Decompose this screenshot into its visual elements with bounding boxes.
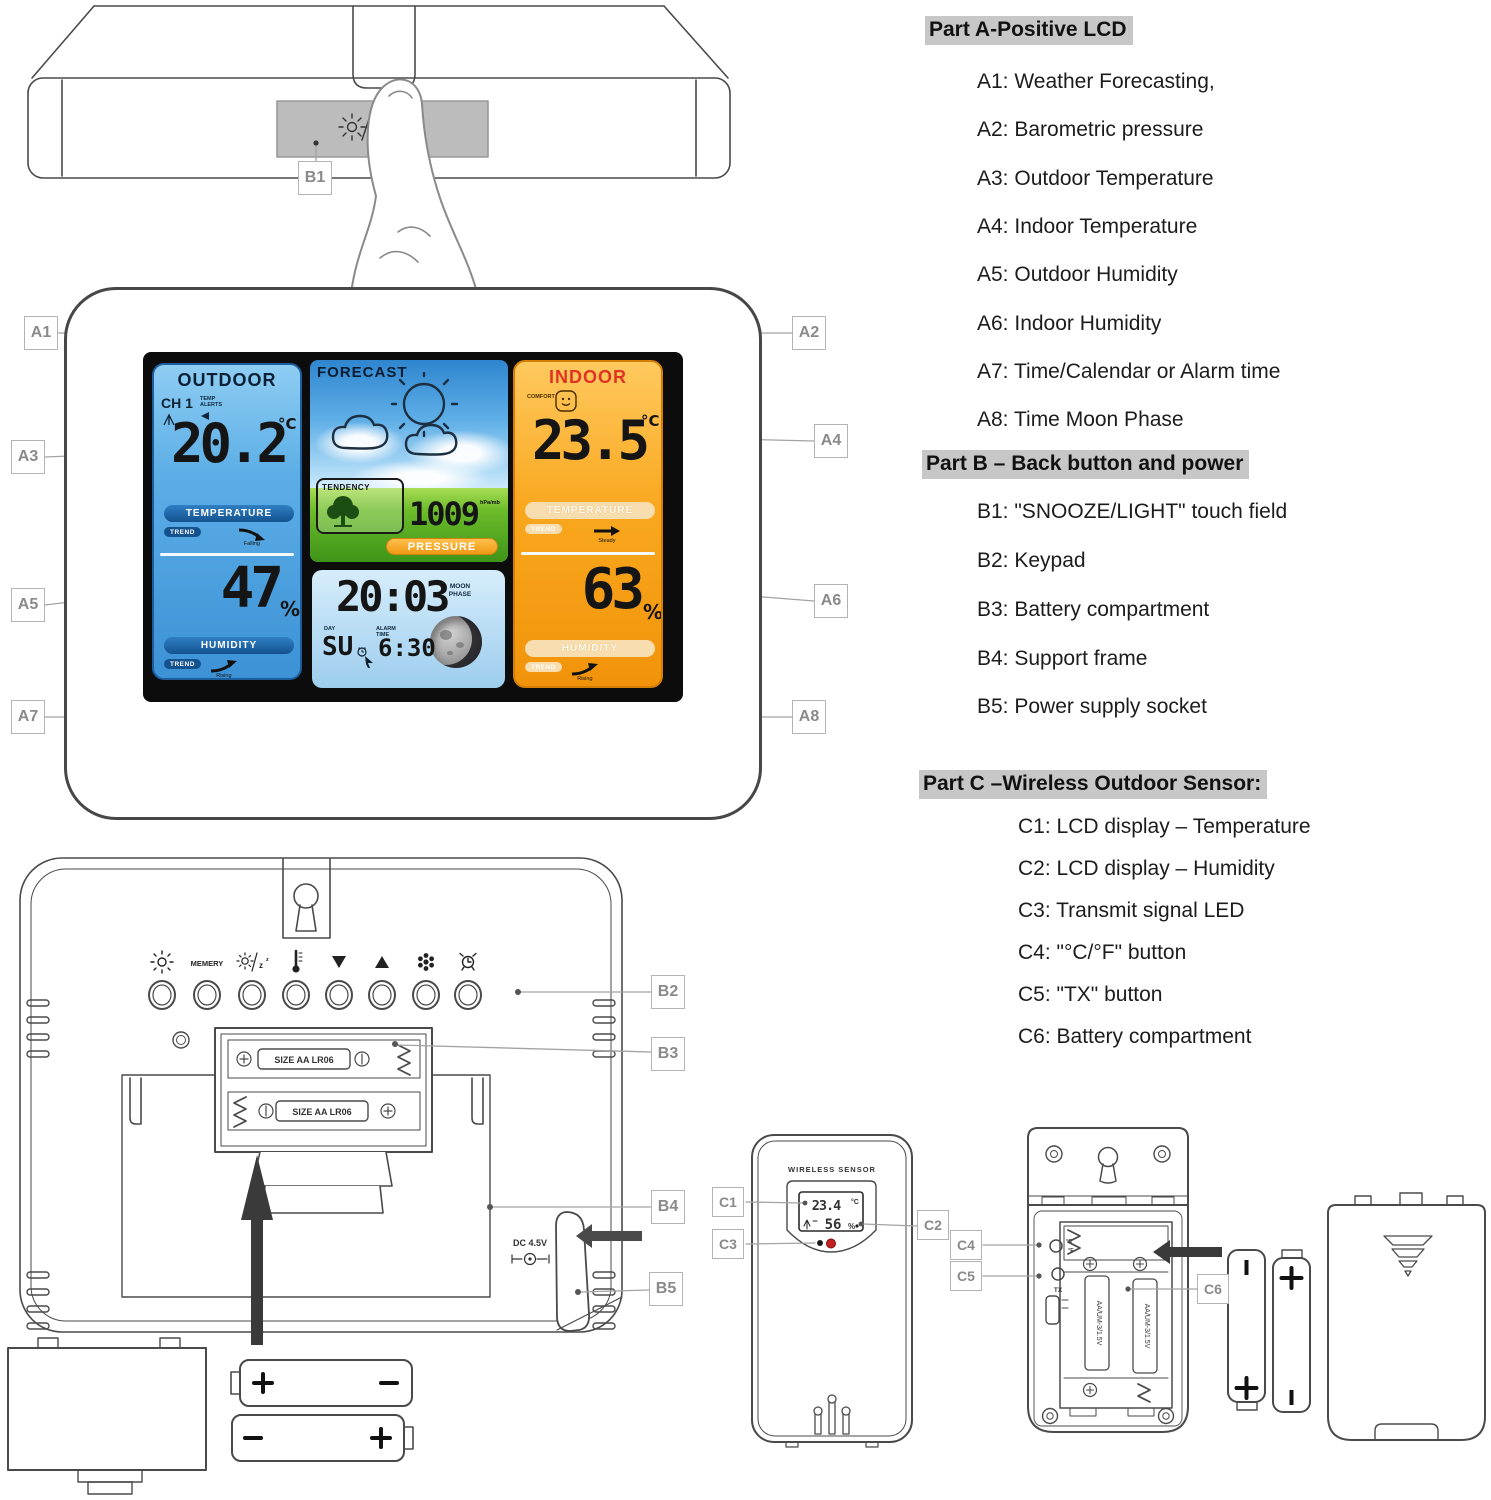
indoor-humidity-unit: % [643, 600, 663, 624]
legend-item-c2: C2: LCD display – Humidity [1018, 857, 1275, 881]
snooze-button-z: z [259, 961, 263, 970]
tx-button-label: TX [1054, 1287, 1063, 1294]
label-a8: A8 [792, 700, 826, 734]
moon-phase-icon [430, 616, 482, 668]
station-lcd-screen: OUTDOOR CH 1 TEMP ALERTS 20.2 °C TEMPERA… [143, 352, 683, 702]
legend-item-b5: B5: Power supply socket [977, 695, 1207, 719]
indoor-temperature-banner: TEMPERATURE [525, 502, 655, 519]
legend-item-a1: A1: Weather Forecasting, [977, 70, 1215, 94]
legend-item-c1: C1: LCD display – Temperature [1018, 815, 1311, 839]
alarm-time-value: 6:30 [378, 636, 436, 660]
sensor-battery-cover-illustration [1328, 1193, 1485, 1440]
part-c-heading: Part C –Wireless Outdoor Sensor: [919, 770, 1267, 799]
sensor-front-illustration [752, 1135, 912, 1447]
legend-item-b3: B3: Battery compartment [977, 598, 1209, 622]
label-a2: A2 [792, 316, 826, 350]
part-b-heading: Part B – Back button and power [922, 450, 1249, 479]
comfort-label: COMFORT [527, 394, 551, 400]
legend-item-a2: A2: Barometric pressure [977, 118, 1203, 142]
cursor-icon [364, 656, 374, 668]
aa-battery-2 [232, 1415, 413, 1461]
sensor-battery-1 [1228, 1250, 1265, 1410]
label-c6: C6 [1197, 1274, 1229, 1304]
cf-button-label-c: °C [1066, 1239, 1072, 1245]
snooze-button-z2: z [266, 957, 269, 963]
forecast-panel: FORECAST TENDENCY 1009 [310, 360, 508, 562]
sensor-battery-2 [1273, 1250, 1310, 1412]
tendency-label: TENDENCY [322, 483, 370, 492]
sensor-temp-unit: °C [851, 1198, 859, 1206]
indoor-temp-trend-label: TREND [525, 524, 562, 534]
label-a5: A5 [11, 588, 45, 622]
legend-item-a3: A3: Outdoor Temperature [977, 167, 1214, 191]
legend-item-b1: B1: "SNOOZE/LIGHT" touch field [977, 500, 1287, 524]
outdoor-humidity-unit: % [280, 597, 300, 621]
indoor-title: INDOOR [515, 367, 661, 388]
pressure-value: 1009 [409, 498, 478, 530]
back-view-illustration: MEMERY z z [20, 858, 642, 1332]
tree-icon [324, 493, 362, 531]
indoor-temp-trend-caption: Steady [598, 539, 615, 545]
sensor-humidity-value: 56 [825, 1217, 842, 1233]
label-b3: B3 [651, 1037, 685, 1071]
outdoor-humidity-value: 47 [154, 561, 280, 617]
indoor-temperature-value: 23.5 [519, 414, 659, 468]
steady-trend-icon [592, 524, 622, 539]
outdoor-hum-trend-caption: Rising [216, 674, 231, 680]
legend-item-c3: C3: Transmit signal LED [1018, 899, 1244, 923]
sensor-temp-value: 23.4 [812, 1198, 841, 1214]
label-c1: C1 [712, 1187, 744, 1217]
memory-button-label: MEMERY [191, 959, 224, 968]
channel-indicator: CH 1 [161, 395, 193, 411]
label-b4: B4 [651, 1190, 685, 1224]
legend-item-a7: A7: Time/Calendar or Alarm time [977, 360, 1280, 384]
legend-item-a5: A5: Outdoor Humidity [977, 263, 1178, 287]
label-a3: A3 [11, 440, 45, 474]
legend-item-b2: B2: Keypad [977, 549, 1086, 573]
legend-item-c6: C6: Battery compartment [1018, 1025, 1251, 1049]
battery-cover-left-illustration [8, 1338, 206, 1494]
battery-slot-label-1: SIZE AA LR06 [274, 1055, 333, 1065]
indoor-hum-trend-caption: Rising [577, 677, 592, 683]
label-b5: B5 [649, 1272, 683, 1306]
cf-button-label-f: °F [1068, 1248, 1074, 1254]
manual-page: z z [0, 0, 1491, 1500]
battery-slot-label-2: SIZE AA LR06 [292, 1107, 351, 1117]
sensor-back-illustration [1028, 1128, 1222, 1432]
outdoor-temp-trend-label: TREND [164, 527, 201, 537]
label-c3: C3 [712, 1229, 744, 1259]
indoor-humidity-value: 63 [515, 562, 641, 618]
label-c5: C5 [950, 1261, 982, 1291]
clock-time: 20:03 [336, 576, 447, 618]
indoor-panel: INDOOR COMFORT 23.5 °C TEMPERATURE TREND… [513, 360, 663, 688]
indoor-humidity-banner: HUMIDITY [525, 640, 655, 657]
sensor-battery-label-2: AA/UM-3/1.5V [1143, 1304, 1150, 1349]
label-a6: A6 [814, 584, 848, 618]
legend-item-c5: C5: "TX" button [1018, 983, 1162, 1007]
label-a7: A7 [11, 700, 45, 734]
outdoor-temperature-value: 20.2 [158, 417, 298, 471]
legend-item-b4: B4: Support frame [977, 647, 1147, 671]
label-b2: B2 [651, 975, 685, 1009]
falling-trend-icon [237, 527, 267, 542]
label-c4: C4 [950, 1230, 982, 1260]
legend-item-a8: A8: Time Moon Phase [977, 408, 1184, 432]
indoor-divider [521, 552, 655, 555]
indoor-hum-trend-label: TREND [525, 662, 562, 672]
temp-alert-label: TEMP ALERTS [200, 396, 230, 409]
sensor-title: WIRELESS SENSOR [788, 1165, 876, 1174]
outdoor-temperature-banner: TEMPERATURE [164, 505, 294, 522]
outdoor-panel: OUTDOOR CH 1 TEMP ALERTS 20.2 °C TEMPERA… [152, 363, 302, 680]
clock-panel: 20:03 MOON PHASE DAY SU ALARM TIME 6:30 [312, 570, 505, 688]
pressure-banner: PRESSURE [386, 538, 498, 555]
part-a-heading: Part A-Positive LCD [925, 16, 1133, 45]
dc-voltage-label: DC 4.5V [513, 1238, 547, 1248]
power-led-icon [817, 1240, 823, 1246]
sensor-humidity-unit: % [848, 1222, 855, 1231]
outdoor-humidity-banner: HUMIDITY [164, 637, 294, 654]
outdoor-hum-trend-label: TREND [164, 659, 201, 669]
pressure-unit: hPa/mb [480, 500, 498, 507]
outdoor-title: OUTDOOR [154, 370, 300, 391]
rising-trend-icon [209, 659, 239, 674]
outdoor-temp-unit: °C [278, 415, 297, 433]
indoor-temp-unit: °C [641, 412, 660, 430]
legend-item-a4: A4: Indoor Temperature [977, 215, 1197, 239]
day-value: SU [322, 634, 353, 660]
label-b1: B1 [298, 161, 332, 195]
legend-item-a6: A6: Indoor Humidity [977, 312, 1161, 336]
legend-item-c4: C4: "°C/°F" button [1018, 941, 1186, 965]
forecast-sun-clouds-icon [320, 372, 500, 472]
moon-phase-label: MOON PHASE [442, 583, 478, 599]
label-a1: A1 [24, 316, 58, 350]
tendency-box: TENDENCY [316, 478, 404, 534]
sensor-battery-label-1: AA/UM-3/1.5V [1095, 1301, 1102, 1346]
battery-compartment [215, 1028, 432, 1152]
label-a4: A4 [814, 424, 848, 458]
transmit-led-icon [827, 1239, 836, 1248]
rising-trend-icon-indoor [570, 662, 600, 677]
label-c2: C2 [917, 1210, 949, 1240]
aa-battery-1 [231, 1360, 412, 1406]
outdoor-temp-trend-caption: Falling [244, 542, 260, 548]
